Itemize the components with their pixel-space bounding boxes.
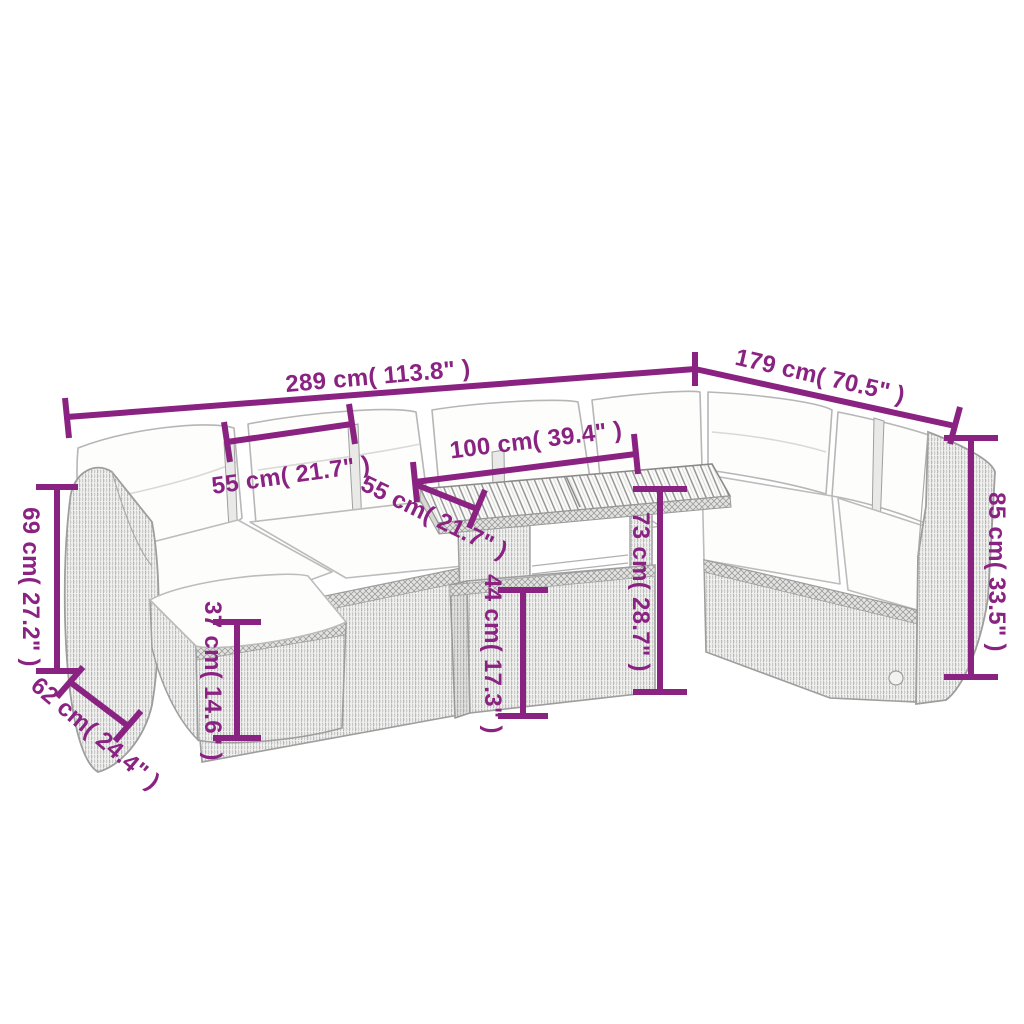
furniture-dimension-diagram: 289 cm( 113.8" ) 179 cm( 70.5" ) 55 cm( … xyxy=(0,0,1024,1024)
dim-label-table-base-height: 44 cm( 17.3" ) xyxy=(478,574,506,734)
dim-label-armrest-height: 69 cm( 27.2" ) xyxy=(16,507,44,667)
dim-label-back-height: 85 cm( 33.5" ) xyxy=(982,492,1010,652)
sofa-set-line-art xyxy=(0,0,1024,1024)
armrest-rivet xyxy=(889,671,903,685)
dim-label-seat-height: 37 cm( 14.6" ) xyxy=(198,601,226,761)
footstool xyxy=(150,574,346,742)
dim-label-table-height: 73 cm( 28.7" ) xyxy=(626,512,654,672)
